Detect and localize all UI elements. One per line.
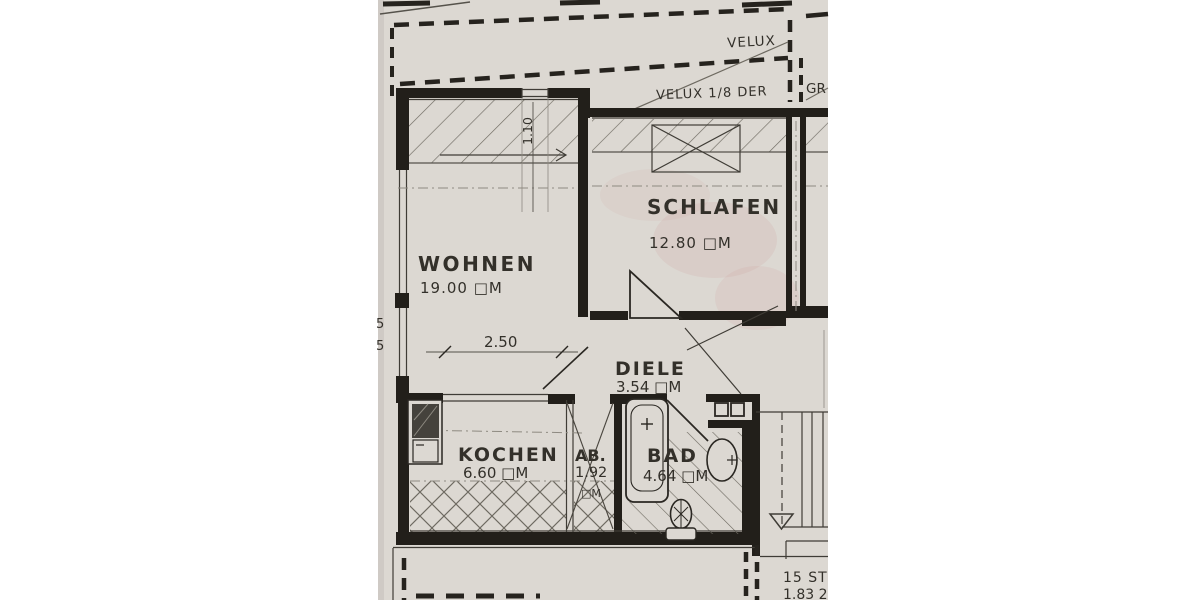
left-edge-dim-lower: 5 bbox=[376, 339, 384, 354]
adjacent-room-label-partial: GR bbox=[806, 81, 826, 97]
stairs-count-label: 15 ST bbox=[783, 570, 828, 586]
room-label-schlafen: SCHLAFEN bbox=[647, 195, 781, 219]
room-label-wohnen: WOHNEN bbox=[418, 252, 536, 276]
room-area-wohnen: 19.00 □M bbox=[420, 279, 503, 297]
room-area-kochen: 6.60 □M bbox=[463, 464, 528, 482]
kitchen-floor-hatch bbox=[410, 481, 566, 532]
velux-label: VELUX bbox=[727, 33, 777, 52]
room-label-bad: BAD bbox=[647, 445, 698, 467]
room-area-ab: 1.92 bbox=[575, 465, 607, 481]
room-label-diele: DIELE bbox=[615, 358, 686, 380]
left-edge-dim-upper: 5 bbox=[376, 317, 384, 332]
room-area-unit-ab: □M bbox=[581, 487, 601, 500]
floor-plan-svg: WOHNEN 19.00 □M SCHLAFEN 12.80 □M DIELE … bbox=[0, 0, 1200, 600]
room-area-bad: 4.64 □M bbox=[643, 467, 708, 485]
dim-wohnen-width: 2.50 bbox=[484, 333, 517, 351]
room-label-ab: AB. bbox=[575, 446, 606, 465]
stairs-partial-dim: 1.83 2 bbox=[783, 587, 828, 600]
washbasin bbox=[707, 439, 737, 481]
kitchen-sink-unit bbox=[408, 400, 442, 464]
floor-plan-scan: WOHNEN 19.00 □M SCHLAFEN 12.80 □M DIELE … bbox=[0, 0, 1200, 600]
dim-skylight: 1.10 bbox=[520, 117, 535, 145]
room-area-diele: 3.54 □M bbox=[616, 378, 681, 396]
room-area-schlafen: 12.80 □M bbox=[649, 234, 732, 252]
room-label-kochen: KOCHEN bbox=[458, 444, 559, 466]
